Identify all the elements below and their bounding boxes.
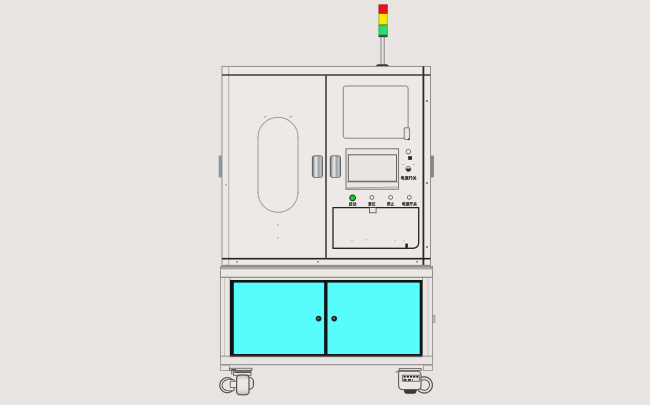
- svg-text:启动: 启动: [349, 202, 357, 207]
- svg-text:电源开关: 电源开关: [401, 175, 417, 181]
- svg-text:复位: 复位: [368, 202, 376, 207]
- svg-text:电源开关: 电源开关: [402, 202, 417, 207]
- svg-text:停止: 停止: [387, 202, 395, 207]
